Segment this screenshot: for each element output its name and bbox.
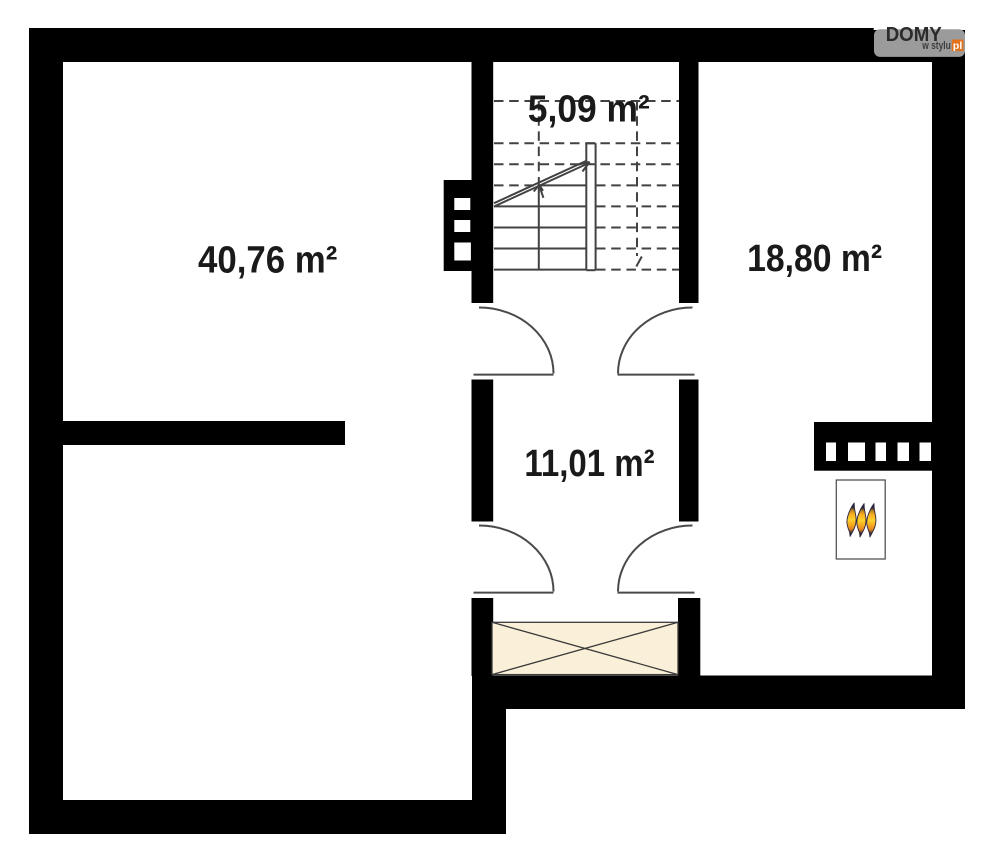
svg-text:pl: pl [953, 40, 962, 52]
svg-text:40,76 m²: 40,76 m² [198, 240, 337, 282]
svg-text:w stylu: w stylu [921, 40, 950, 52]
svg-text:5,09 m²: 5,09 m² [528, 89, 650, 131]
svg-text:18,80 m²: 18,80 m² [747, 238, 882, 280]
svg-text:11,01 m²: 11,01 m² [524, 443, 654, 485]
